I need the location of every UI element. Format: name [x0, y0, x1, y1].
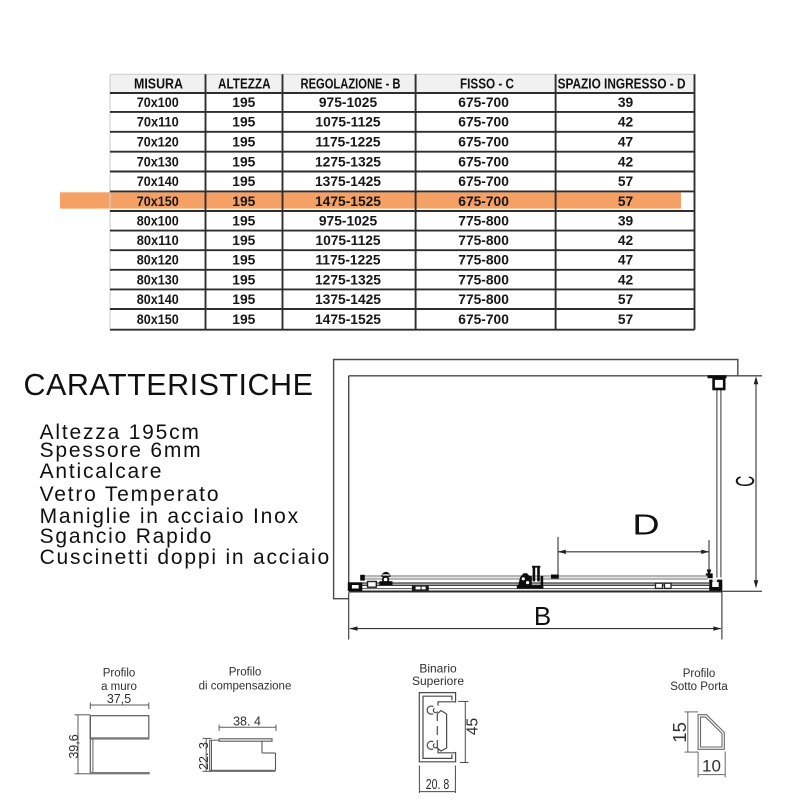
- svg-text:SPAZIO INGRESSO - D: SPAZIO INGRESSO - D: [558, 77, 686, 93]
- svg-text:39: 39: [618, 95, 634, 110]
- svg-text:70x100: 70x100: [137, 95, 179, 110]
- svg-text:47: 47: [618, 253, 634, 268]
- svg-text:1175-1225: 1175-1225: [315, 135, 381, 150]
- svg-text:195: 195: [232, 312, 255, 327]
- svg-text:775-800: 775-800: [458, 214, 509, 229]
- svg-text:975-1025: 975-1025: [319, 95, 378, 110]
- svg-text:22. 3: 22. 3: [197, 742, 211, 770]
- svg-text:MISURA: MISURA: [134, 77, 183, 93]
- svg-text:70x150: 70x150: [137, 194, 179, 209]
- svg-text:47: 47: [618, 135, 634, 150]
- svg-text:57: 57: [618, 312, 634, 327]
- svg-text:57: 57: [618, 194, 634, 209]
- svg-text:1375-1425: 1375-1425: [315, 174, 381, 189]
- svg-text:57: 57: [618, 292, 634, 307]
- svg-text:1275-1325: 1275-1325: [315, 272, 381, 287]
- svg-text:675-700: 675-700: [458, 135, 509, 150]
- svg-text:Anticalcare: Anticalcare: [40, 460, 164, 483]
- svg-text:1375-1425: 1375-1425: [315, 292, 381, 307]
- svg-text:1275-1325: 1275-1325: [315, 154, 381, 169]
- svg-text:Cuscinetti doppi in acciaio: Cuscinetti doppi in acciaio: [40, 546, 331, 569]
- svg-text:Superiore: Superiore: [412, 674, 464, 688]
- svg-text:15: 15: [669, 722, 690, 743]
- svg-text:675-700: 675-700: [458, 154, 509, 169]
- svg-text:di compensazione: di compensazione: [199, 680, 292, 692]
- svg-text:195: 195: [232, 174, 255, 189]
- svg-text:39,6: 39,6: [67, 734, 81, 758]
- svg-text:195: 195: [232, 233, 255, 248]
- svg-text:80x120: 80x120: [137, 253, 179, 268]
- svg-text:FISSO - C: FISSO - C: [460, 77, 514, 93]
- svg-text:195: 195: [232, 135, 255, 150]
- svg-text:80x110: 80x110: [137, 233, 179, 248]
- svg-text:37,5: 37,5: [107, 692, 131, 706]
- svg-text:80x150: 80x150: [137, 312, 179, 327]
- svg-text:D: D: [632, 509, 659, 541]
- svg-text:1475-1525: 1475-1525: [315, 194, 381, 209]
- svg-text:195: 195: [232, 214, 255, 229]
- svg-text:B: B: [534, 601, 551, 631]
- svg-text:195: 195: [232, 272, 255, 287]
- svg-text:C: C: [730, 476, 760, 487]
- svg-text:57: 57: [618, 174, 634, 189]
- svg-text:Profilo: Profilo: [103, 668, 136, 680]
- svg-text:20. 8: 20. 8: [426, 777, 450, 793]
- svg-text:775-800: 775-800: [458, 272, 509, 287]
- svg-text:195: 195: [232, 194, 255, 209]
- svg-text:1475-1525: 1475-1525: [315, 312, 381, 327]
- svg-text:70x140: 70x140: [137, 174, 179, 189]
- svg-text:10: 10: [702, 757, 721, 776]
- svg-text:1075-1125: 1075-1125: [315, 233, 381, 248]
- svg-text:675-700: 675-700: [458, 115, 509, 130]
- svg-text:775-800: 775-800: [458, 253, 509, 268]
- svg-text:80x140: 80x140: [137, 292, 179, 307]
- svg-text:195: 195: [232, 292, 255, 307]
- svg-text:70x130: 70x130: [137, 154, 179, 169]
- svg-text:42: 42: [618, 115, 634, 130]
- svg-text:1075-1125: 1075-1125: [315, 115, 381, 130]
- svg-text:675-700: 675-700: [458, 194, 509, 209]
- svg-text:70x110: 70x110: [137, 115, 179, 130]
- svg-text:1175-1225: 1175-1225: [315, 253, 381, 268]
- svg-text:Profilo: Profilo: [229, 667, 262, 679]
- svg-text:775-800: 775-800: [458, 233, 509, 248]
- svg-text:70x120: 70x120: [137, 135, 179, 150]
- svg-text:Spessore 6mm: Spessore 6mm: [40, 439, 203, 462]
- svg-text:975-1025: 975-1025: [319, 214, 378, 229]
- svg-text:ALTEZZA: ALTEZZA: [218, 77, 271, 93]
- svg-text:195: 195: [232, 95, 255, 110]
- svg-text:675-700: 675-700: [458, 95, 509, 110]
- svg-text:675-700: 675-700: [458, 174, 509, 189]
- svg-text:45: 45: [465, 718, 482, 735]
- svg-text:42: 42: [618, 154, 634, 169]
- svg-text:675-700: 675-700: [458, 312, 509, 327]
- svg-text:39: 39: [618, 214, 634, 229]
- svg-text:Profilo: Profilo: [683, 668, 716, 680]
- svg-text:775-800: 775-800: [458, 292, 509, 307]
- svg-text:42: 42: [618, 233, 634, 248]
- svg-text:195: 195: [232, 115, 255, 130]
- svg-text:REGOLAZIONE - B: REGOLAZIONE - B: [301, 77, 401, 93]
- svg-text:195: 195: [232, 154, 255, 169]
- svg-text:CARATTERISTICHE: CARATTERISTICHE: [24, 368, 314, 402]
- svg-text:80x100: 80x100: [137, 214, 179, 229]
- svg-text:Sotto Porta: Sotto Porta: [670, 681, 728, 693]
- svg-text:80x130: 80x130: [137, 272, 179, 287]
- svg-text:42: 42: [618, 272, 634, 287]
- svg-text:Sgancio Rapido: Sgancio Rapido: [40, 525, 213, 548]
- svg-text:195: 195: [232, 253, 255, 268]
- svg-text:Vetro Temperato: Vetro Temperato: [40, 483, 221, 506]
- svg-text:38. 4: 38. 4: [233, 714, 261, 728]
